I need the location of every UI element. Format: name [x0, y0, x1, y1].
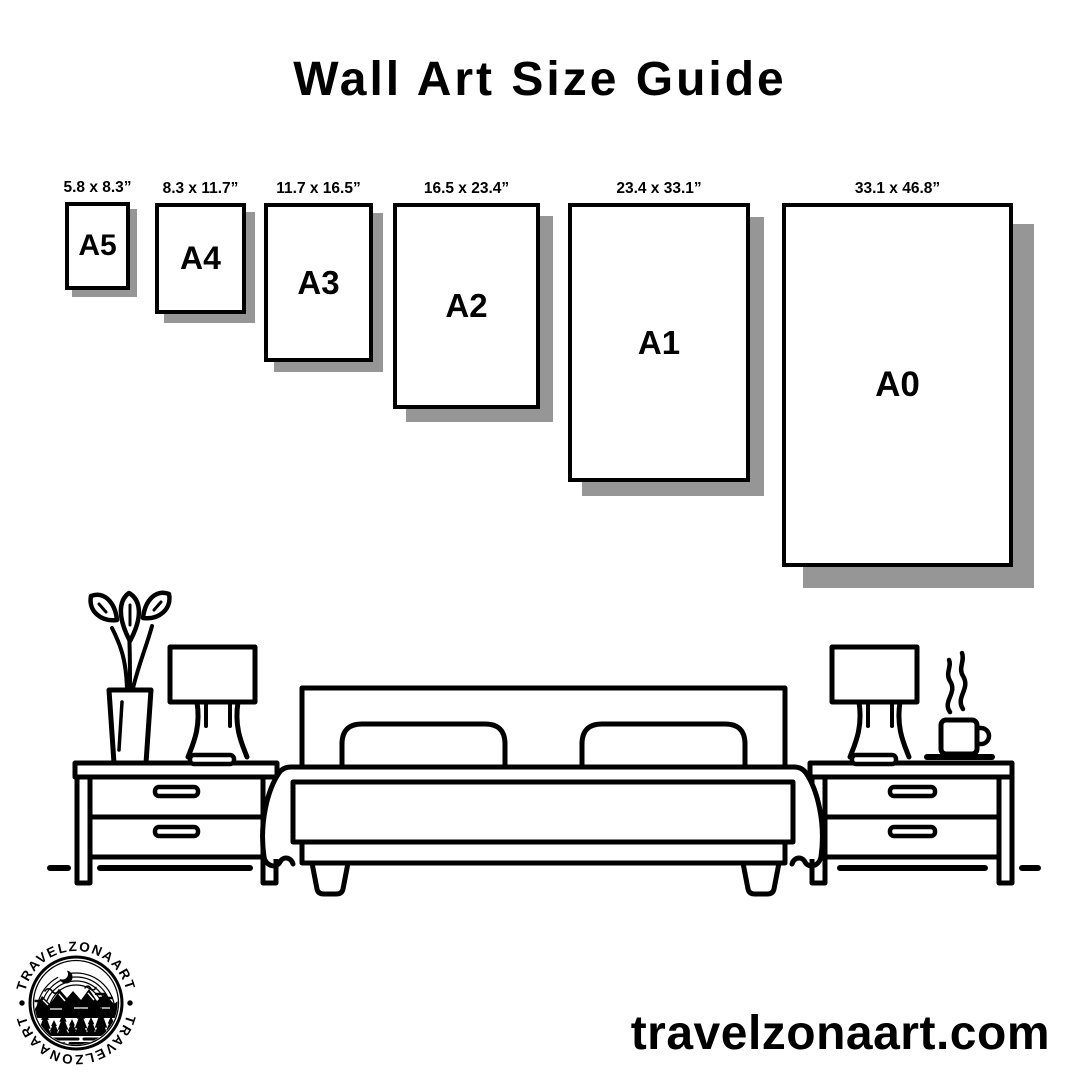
pillow-right	[582, 724, 745, 769]
poster-a3-label: A3	[297, 264, 339, 302]
brand-logo: TRAVELZONAART TRAVELZONAART	[6, 934, 146, 1074]
poster-a4: 8.3 x 11.7” A4	[155, 203, 246, 314]
poster-a4-label: A4	[180, 240, 221, 277]
poster-a4-dimensions: 8.3 x 11.7”	[163, 180, 239, 198]
poster-a2-sheet: A2	[393, 203, 540, 409]
double-bed-icon	[263, 688, 823, 894]
potted-plant-icon	[91, 593, 170, 763]
size-guide-poster: Wall Art Size Guide 5.8 x 8.3” A5 8.3 x …	[0, 0, 1080, 1080]
poster-a1-dimensions: 23.4 x 33.1”	[616, 180, 701, 198]
page-title: Wall Art Size Guide	[0, 52, 1080, 107]
poster-a5: 5.8 x 8.3” A5	[65, 202, 130, 290]
poster-a1: 23.4 x 33.1” A1	[568, 203, 750, 482]
badge-dot-left	[19, 1000, 24, 1005]
poster-a0-dimensions: 33.1 x 46.8”	[855, 180, 940, 198]
poster-a2-label: A2	[445, 287, 487, 325]
poster-a0-label: A0	[875, 365, 920, 405]
poster-a0: 33.1 x 46.8” A0	[782, 203, 1013, 567]
poster-a3: 11.7 x 16.5” A3	[264, 203, 373, 362]
badge-dot-right	[127, 1000, 132, 1005]
poster-a2: 16.5 x 23.4” A2	[393, 203, 540, 409]
poster-a5-label: A5	[78, 229, 116, 263]
poster-a1-sheet: A1	[568, 203, 750, 482]
poster-a2-dimensions: 16.5 x 23.4”	[424, 180, 509, 198]
poster-a4-sheet: A4	[155, 203, 246, 314]
poster-a3-dimensions: 11.7 x 16.5”	[276, 180, 360, 198]
poster-a3-sheet: A3	[264, 203, 373, 362]
table-lamp-left-icon	[170, 647, 255, 764]
poster-a5-dimensions: 5.8 x 8.3”	[63, 179, 131, 197]
coffee-cup-icon	[927, 653, 992, 757]
pillow-left	[342, 724, 505, 769]
poster-a1-label: A1	[638, 324, 680, 362]
website-url: travelzonaart.com	[631, 1006, 1050, 1061]
table-lamp-right-icon	[832, 647, 917, 764]
poster-a0-sheet: A0	[782, 203, 1013, 567]
bedroom-illustration	[0, 580, 1080, 900]
poster-a5-sheet: A5	[65, 202, 130, 290]
